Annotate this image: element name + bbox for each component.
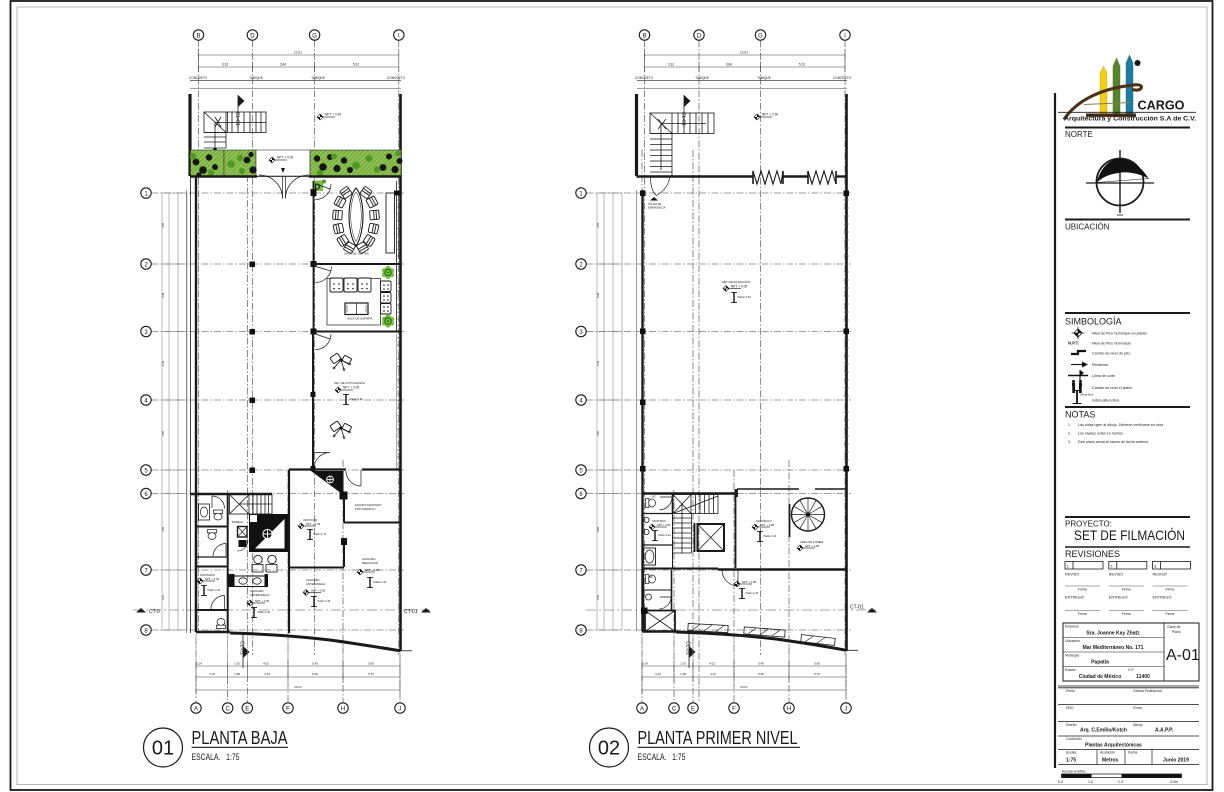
svg-text:SALA DE JUNTAS: SALA DE JUNTAS <box>344 252 369 256</box>
svg-text:Firma: Firma <box>1078 588 1087 592</box>
svg-text:Firma: Firma <box>1166 612 1175 616</box>
svg-text:Plano: Plano <box>1172 630 1181 634</box>
svg-text:Firma: Firma <box>1078 612 1087 616</box>
svg-text:NPT + 0.05: NPT + 0.05 <box>365 568 380 572</box>
svg-text:1.0: 1.0 <box>1088 780 1093 784</box>
svg-text:Arq. C.Emilio/Kotch: Arq. C.Emilio/Kotch <box>1080 728 1127 734</box>
svg-text:Firma: Firma <box>1133 706 1142 710</box>
svg-text:5.45: 5.45 <box>312 662 318 666</box>
svg-text:A: A <box>194 706 198 712</box>
svg-text:2: 2 <box>579 262 583 268</box>
svg-text:1:75: 1:75 <box>1066 758 1076 764</box>
svg-text:TABIQUE: TABIQUE <box>695 76 709 80</box>
svg-text:CT-01: CT-01 <box>404 609 418 615</box>
svg-text:Los niveles están en metros.: Los niveles están en metros. <box>1078 432 1124 436</box>
svg-text:SANITARIO: SANITARIO <box>652 519 666 523</box>
svg-text:CONCRETO: CONCRETO <box>387 76 406 80</box>
svg-text:N.P.T.: N.P.T. <box>1068 341 1079 346</box>
svg-text:02: 02 <box>598 738 620 760</box>
svg-text:NOTAS: NOTAS <box>1065 410 1095 420</box>
svg-text:F: F <box>286 706 290 712</box>
svg-text:ANTEBODEGA: ANTEBODEGA <box>250 593 270 597</box>
svg-text:3.00: 3.00 <box>161 594 165 600</box>
svg-text:ENTREGÓ: ENTREGÓ <box>1109 595 1128 600</box>
svg-text:A-01: A-01 <box>1166 647 1200 664</box>
svg-text:Firma: Firma <box>1122 612 1131 616</box>
svg-text:CONCRETO: CONCRETO <box>189 76 208 80</box>
svg-text:Metros: Metros <box>1102 758 1119 764</box>
svg-text:G: G <box>758 33 763 39</box>
svg-text:NPT + 0.05: NPT + 0.05 <box>205 577 220 581</box>
svg-text:ESCALA. 1:75: ESCALA. 1:75 <box>192 752 240 763</box>
svg-text:DRO: DRO <box>1066 706 1074 710</box>
svg-text:Diseño: Diseño <box>1066 723 1077 727</box>
svg-text:3.55: 3.55 <box>161 222 165 228</box>
svg-text:NPT + 0.05: NPT + 0.05 <box>277 156 293 160</box>
svg-text:SALA DE ESPERA: SALA DE ESPERA <box>347 317 373 321</box>
svg-text:WC: WC <box>649 576 653 579</box>
svg-text:E: E <box>245 706 249 712</box>
svg-text:3: 3 <box>144 330 148 336</box>
svg-text:Plafón 2.40: Plafón 2.40 <box>659 534 672 537</box>
svg-text:UBICACIÓN: UBICACIÓN <box>1065 223 1110 232</box>
svg-text:6: 6 <box>144 492 148 498</box>
svg-text:F: F <box>732 706 736 712</box>
svg-text:D: D <box>697 33 702 39</box>
svg-text:I: I <box>844 33 846 39</box>
svg-text:NPT + 2.85: NPT + 2.85 <box>805 544 820 548</box>
svg-text:3.50: 3.50 <box>596 430 600 436</box>
svg-text:5.49: 5.49 <box>758 672 764 676</box>
svg-text:Línea de corte: Línea de corte <box>1092 374 1115 378</box>
svg-text:CONCRETO: CONCRETO <box>635 76 654 80</box>
svg-text:3.84: 3.84 <box>726 63 732 67</box>
svg-text:H: H <box>341 706 345 712</box>
svg-text:5.60: 5.60 <box>814 662 820 666</box>
svg-text:4: 4 <box>144 398 148 404</box>
svg-text:3.32: 3.32 <box>222 63 228 67</box>
svg-text:REVISIONES: REVISIONES <box>1065 549 1120 559</box>
svg-text:4.02: 4.02 <box>263 662 269 666</box>
svg-text:1.98: 1.98 <box>680 672 686 676</box>
svg-text:5.20: 5.20 <box>353 63 359 67</box>
svg-text:D: D <box>250 33 255 39</box>
svg-text:1: 1 <box>579 191 583 197</box>
svg-text:Nivel de Piso Terminado: Nivel de Piso Terminado <box>1092 342 1131 346</box>
svg-text:5: 5 <box>579 468 583 474</box>
svg-text:EMERGENCIA: EMERGENCIA <box>648 206 666 210</box>
svg-text:Pendiente: Pendiente <box>1092 363 1108 367</box>
svg-text:20.61: 20.61 <box>740 685 748 689</box>
svg-text:Dibujó: Dibujó <box>1133 723 1143 727</box>
svg-text:H: H <box>787 706 791 712</box>
svg-text:Plafón 5.30: Plafón 5.30 <box>350 397 364 401</box>
svg-text:Estado: Estado <box>1065 668 1076 672</box>
svg-text:3.: 3. <box>1154 564 1157 569</box>
svg-text:Plafón 2.46: Plafón 2.46 <box>318 600 331 603</box>
svg-text:ENTREGÓ: ENTREGÓ <box>1153 595 1172 600</box>
svg-text:3.83: 3.83 <box>596 526 600 532</box>
svg-text:3.83: 3.83 <box>161 526 165 532</box>
svg-text:3.43: 3.43 <box>161 360 165 366</box>
svg-text:3.00: 3.00 <box>596 594 600 600</box>
svg-text:5.60: 5.60 <box>368 662 374 666</box>
svg-text:CARGO: CARGO <box>1138 98 1185 113</box>
svg-text:REVISÓ: REVISÓ <box>1065 572 1079 577</box>
svg-text:7: 7 <box>144 568 148 574</box>
svg-text:CL-01: CL-01 <box>234 112 240 126</box>
svg-text:3.38: 3.38 <box>161 292 165 298</box>
svg-text:PLANTA BAJA: PLANTA BAJA <box>192 728 288 748</box>
svg-text:2.: 2. <box>1068 432 1071 436</box>
svg-text:12.61: 12.61 <box>294 51 302 55</box>
svg-text:3.32: 3.32 <box>668 63 674 67</box>
svg-text:20.61: 20.61 <box>294 685 302 689</box>
svg-text:1.92: 1.92 <box>680 662 686 666</box>
svg-text:TABIQUE: TABIQUE <box>249 76 263 80</box>
svg-text:Mar Mediterráneo No. 171: Mar Mediterráneo No. 171 <box>1083 645 1144 651</box>
svg-text:NPT + 0.05: NPT + 0.05 <box>731 284 747 288</box>
svg-text:SIMBOLOGÍA: SIMBOLOGÍA <box>1065 317 1122 327</box>
svg-text:2.0: 2.0 <box>1118 780 1123 784</box>
svg-text:C: C <box>672 706 677 712</box>
svg-text:MEDIACIÓN: MEDIACIÓN <box>362 560 378 565</box>
svg-text:3: 3 <box>579 330 583 336</box>
svg-text:Nivel de Piso Terminado en pla: Nivel de Piso Terminado en planta <box>1092 332 1146 336</box>
svg-text:CL-01: CL-01 <box>239 641 245 655</box>
svg-text:1.: 1. <box>1068 423 1071 427</box>
svg-text:4.0m: 4.0m <box>1170 780 1178 784</box>
svg-text:NPT + 0.90: NPT + 0.90 <box>325 113 341 117</box>
svg-text:4.02: 4.02 <box>709 662 715 666</box>
svg-text:Escala: Escala <box>1066 751 1076 755</box>
svg-text:Acotación: Acotación <box>1100 751 1115 755</box>
svg-text:REVISÓ: REVISÓ <box>1109 572 1123 577</box>
svg-text:SET DE FILMACIÓN: SET DE FILMACIÓN <box>1074 527 1185 543</box>
svg-text:3.38: 3.38 <box>596 292 600 298</box>
svg-text:Cédula Profesional: Cédula Profesional <box>1133 689 1162 693</box>
svg-text:Plafón 2.40: Plafón 2.40 <box>208 589 221 592</box>
svg-text:8: 8 <box>144 628 148 634</box>
svg-text:Las cotas rigen al dibujo. Deb: Las cotas rigen al dibujo. Deberán verif… <box>1078 423 1164 427</box>
svg-text:ANTEBODEGA: ANTEBODEGA <box>306 582 326 586</box>
svg-text:Plafón 2.46: Plafón 2.46 <box>746 592 759 595</box>
svg-text:REVISÓ: REVISÓ <box>1153 572 1167 577</box>
svg-text:Ciudad de México: Ciudad de México <box>1079 674 1122 680</box>
svg-text:3.43: 3.43 <box>596 360 600 366</box>
svg-text:FOTOGRÁFICO: FOTOGRÁFICO <box>355 507 376 511</box>
svg-text:Plafón 2.40: Plafón 2.40 <box>258 611 271 614</box>
svg-text:5.45: 5.45 <box>758 662 764 666</box>
svg-text:CL-01: CL-01 <box>685 641 691 655</box>
svg-text:A.A.P.P.: A.A.P.P. <box>1155 728 1174 734</box>
svg-text:Firma: Firma <box>1166 588 1175 592</box>
svg-text:CT-0: CT-0 <box>149 609 160 615</box>
svg-text:ESCALA. 1:75: ESCALA. 1:75 <box>638 752 686 763</box>
svg-text:NPT + 2.85: NPT + 2.85 <box>760 523 775 527</box>
svg-text:NPT + 2.85: NPT + 2.85 <box>657 523 671 527</box>
svg-text:B: B <box>642 33 646 39</box>
svg-text:5.20: 5.20 <box>799 63 805 67</box>
svg-text:1: 1 <box>144 191 148 197</box>
svg-text:Plafón 2.46: Plafón 2.46 <box>374 581 387 584</box>
svg-text:Ubicación: Ubicación <box>1065 639 1080 643</box>
svg-text:01: 01 <box>152 738 174 760</box>
svg-text:G: G <box>312 33 317 39</box>
svg-text:11400: 11400 <box>1136 674 1150 680</box>
svg-text:3.50: 3.50 <box>161 430 165 436</box>
svg-text:Junio 2019: Junio 2019 <box>1163 758 1189 764</box>
svg-text:Plafón 2.70: Plafón 2.70 <box>314 533 327 536</box>
svg-text:Plantas Arquitectónicas: Plantas Arquitectónicas <box>1085 743 1142 749</box>
svg-text:Municipio: Municipio <box>1065 654 1079 658</box>
svg-text:NPT + 2.85: NPT + 2.85 <box>742 580 757 584</box>
svg-text:3.84: 3.84 <box>280 63 286 67</box>
svg-text:TABIQUE: TABIQUE <box>757 76 771 80</box>
svg-text:Empresa: Empresa <box>1065 625 1079 629</box>
svg-text:TABIQUE: TABIQUE <box>311 76 325 80</box>
svg-text:Altura libre: Altura libre <box>1080 393 1094 397</box>
svg-text:4.12: 4.12 <box>264 672 270 676</box>
svg-text:2: 2 <box>144 262 148 268</box>
svg-text:NPT + 0.05: NPT + 0.05 <box>311 588 326 592</box>
svg-text:12.61: 12.61 <box>740 51 748 55</box>
svg-text:NPT + 0.90: NPT + 0.90 <box>762 113 778 117</box>
svg-text:5.73: 5.73 <box>368 672 374 676</box>
svg-text:8: 8 <box>579 628 583 634</box>
svg-text:Cambio de nivel de piso: Cambio de nivel de piso <box>1092 352 1130 356</box>
svg-text:5.49: 5.49 <box>312 672 318 676</box>
svg-text:Contenido: Contenido <box>1066 737 1082 741</box>
svg-text:0.14: 0.14 <box>642 662 648 666</box>
svg-text:ENTREGÓ: ENTREGÓ <box>1065 595 1084 600</box>
svg-text:WC: WC <box>652 496 656 499</box>
svg-text:PLANTA PRIMER NIVEL: PLANTA PRIMER NIVEL <box>638 728 798 748</box>
svg-text:2.: 2. <box>1110 564 1113 569</box>
svg-text:1.: 1. <box>1067 564 1070 569</box>
svg-text:1.92: 1.92 <box>234 662 240 666</box>
svg-text:Escala Gráfica: Escala Gráfica <box>1062 770 1085 774</box>
svg-text:0.14: 0.14 <box>196 662 202 666</box>
svg-text:3.55: 3.55 <box>596 222 600 228</box>
svg-text:5: 5 <box>144 468 148 474</box>
svg-text:1.98: 1.98 <box>234 672 240 676</box>
svg-text:Clave de: Clave de <box>1167 625 1180 629</box>
svg-text:0.0: 0.0 <box>1058 780 1063 784</box>
svg-text:3.10: 3.10 <box>655 672 661 676</box>
svg-text:Papatla: Papatla <box>1091 660 1109 666</box>
svg-text:4.12: 4.12 <box>710 672 716 676</box>
svg-text:Perito: Perito <box>1066 689 1075 693</box>
svg-text:R: R <box>1136 61 1139 66</box>
svg-text:E: E <box>691 706 695 712</box>
svg-text:NPT + 0.05: NPT + 0.05 <box>255 599 270 603</box>
svg-text:SALIDA DE: SALIDA DE <box>648 202 662 206</box>
svg-text:6: 6 <box>579 492 583 498</box>
svg-text:Cambio de nivel el plafón: Cambio de nivel el plafón <box>1092 386 1132 390</box>
svg-text:B: B <box>196 33 200 39</box>
svg-text:Este plano anula al mismo de f: Este plano anula al mismo de fecha anter… <box>1078 440 1149 444</box>
svg-text:BODEGA: BODEGA <box>232 520 243 524</box>
svg-text:NORTE: NORTE <box>1065 130 1093 139</box>
svg-text:Plafón 2.46: Plafón 2.46 <box>764 535 777 538</box>
svg-text:Arquitectura y Construcción S.: Arquitectura y Construcción S.A de C.V. <box>1064 116 1196 123</box>
svg-text:A: A <box>640 706 644 712</box>
svg-text:5.73: 5.73 <box>814 672 820 676</box>
svg-text:CT-01: CT-01 <box>850 605 864 611</box>
svg-text:NPT + 2.46: NPT + 2.46 <box>306 522 321 526</box>
svg-text:7: 7 <box>579 568 583 574</box>
svg-text:Indica altura libre: Indica altura libre <box>1092 399 1119 403</box>
svg-text:C: C <box>226 706 231 712</box>
svg-text:3.10: 3.10 <box>209 672 215 676</box>
svg-text:CONCRETO: CONCRETO <box>833 76 852 80</box>
svg-text:SET DE FILMACIÓN: SET DE FILMACIÓN <box>722 279 750 284</box>
svg-text:Firma: Firma <box>1122 588 1131 592</box>
svg-text:C.P.: C.P. <box>1128 668 1134 672</box>
svg-text:3.: 3. <box>1068 440 1071 444</box>
svg-text:Plafón 5.30: Plafón 5.30 <box>738 295 752 299</box>
svg-text:NPT + 0.05: NPT + 0.05 <box>343 386 359 390</box>
svg-text:J: J <box>399 706 402 712</box>
svg-text:Sra. Joanne Kay Zhatz: Sra. Joanne Kay Zhatz <box>1086 631 1140 637</box>
svg-text:J: J <box>845 706 848 712</box>
svg-text:4: 4 <box>579 398 583 404</box>
svg-text:SET DE FOTOGRAFÍA: SET DE FOTOGRAFÍA <box>334 381 365 385</box>
svg-text:Fecha: Fecha <box>1128 751 1138 755</box>
svg-text:I: I <box>398 33 400 39</box>
